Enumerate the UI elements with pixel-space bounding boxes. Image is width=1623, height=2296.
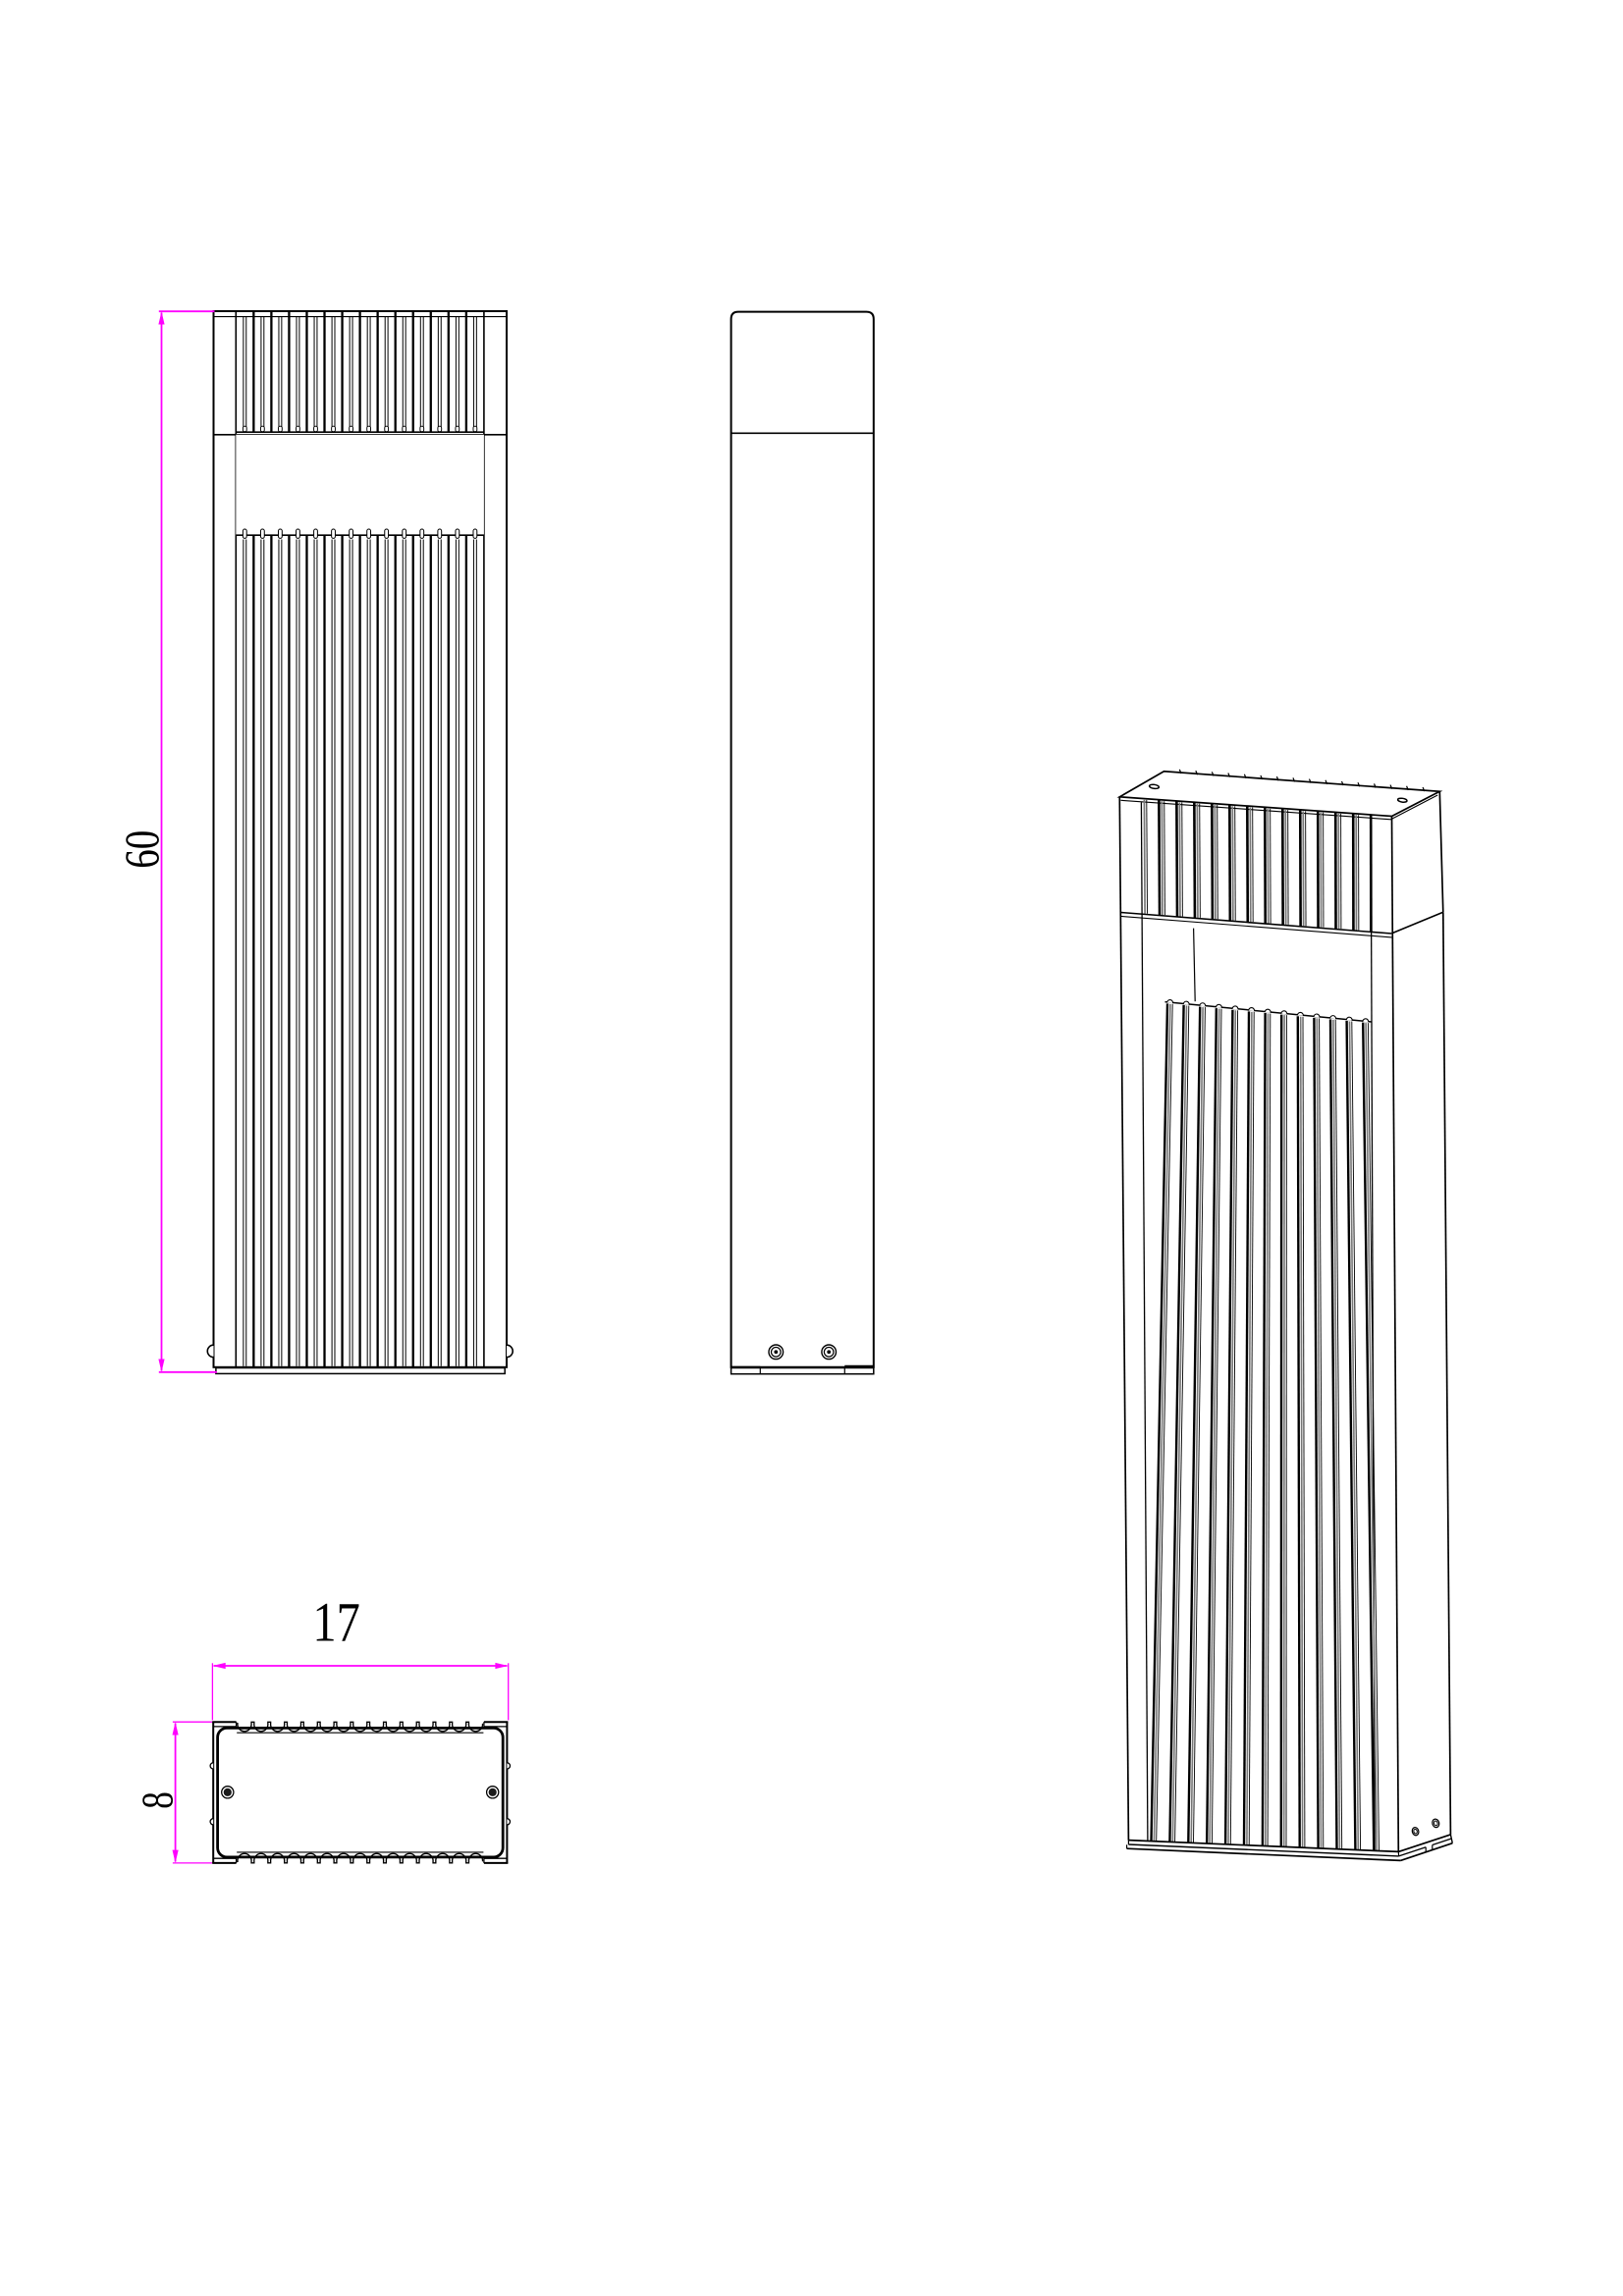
svg-text:8: 8 bbox=[133, 1791, 182, 1809]
svg-text:17: 17 bbox=[312, 1592, 359, 1653]
svg-text:60: 60 bbox=[114, 830, 169, 869]
